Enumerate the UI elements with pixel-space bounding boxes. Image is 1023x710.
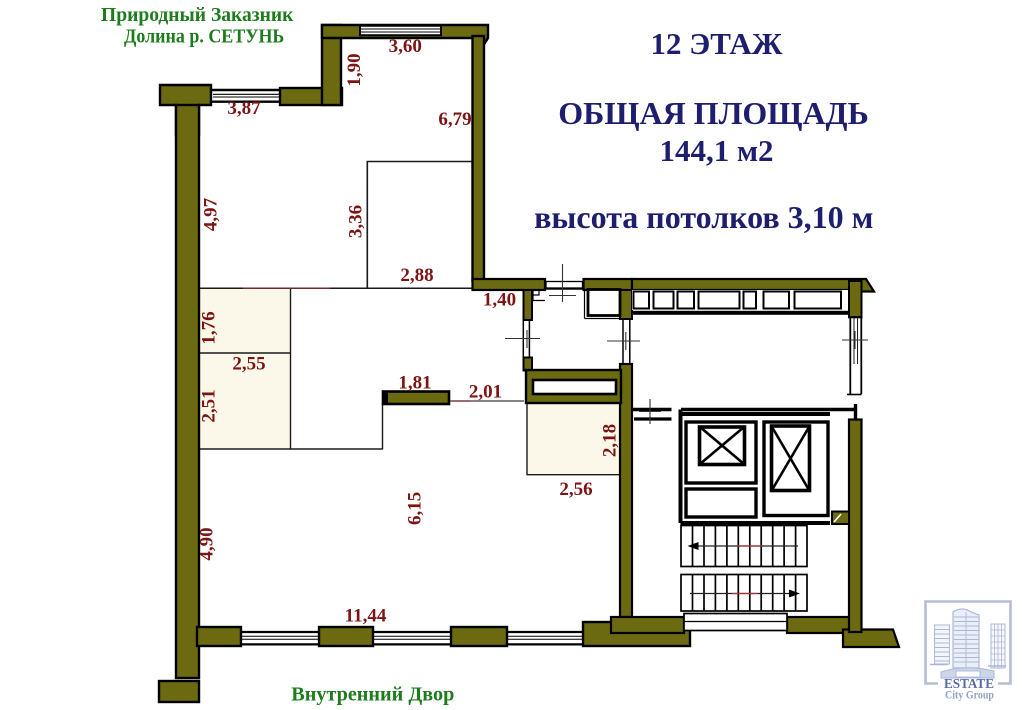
svg-text:высота потолков 3,10 м: высота потолков 3,10 м	[534, 199, 873, 235]
svg-text:1,76: 1,76	[198, 311, 219, 344]
svg-text:11,44: 11,44	[345, 606, 387, 627]
svg-text:2,88: 2,88	[400, 265, 433, 286]
svg-text:City Group: City Group	[945, 690, 994, 702]
svg-text:144,1 м2: 144,1 м2	[659, 133, 773, 168]
svg-text:2,51: 2,51	[198, 389, 219, 422]
svg-text:6,15: 6,15	[404, 492, 425, 525]
svg-text:1,81: 1,81	[398, 373, 431, 394]
svg-text:Природный Заказник: Природный Заказник	[101, 4, 294, 26]
svg-text:3,36: 3,36	[345, 205, 366, 238]
svg-text:3,60: 3,60	[389, 36, 422, 57]
svg-text:6,79: 6,79	[438, 109, 471, 130]
svg-text:ОБЩАЯ ПЛОЩАДЬ: ОБЩАЯ ПЛОЩАДЬ	[558, 95, 868, 131]
svg-text:1,90: 1,90	[344, 53, 365, 86]
svg-text:4,90: 4,90	[196, 527, 217, 560]
svg-text:Внутренний Двор: Внутренний Двор	[291, 684, 454, 706]
svg-text:2,01: 2,01	[469, 382, 502, 403]
svg-text:Долина р. СЕТУНЬ: Долина р. СЕТУНЬ	[124, 27, 284, 48]
svg-text:2,18: 2,18	[599, 424, 620, 457]
svg-text:12 ЭТАЖ: 12 ЭТАЖ	[651, 26, 783, 61]
svg-text:3,87: 3,87	[227, 98, 261, 119]
svg-text:1,40: 1,40	[483, 290, 516, 311]
svg-text:4,97: 4,97	[200, 197, 221, 231]
svg-text:2,56: 2,56	[559, 479, 592, 500]
svg-text:2,55: 2,55	[232, 354, 265, 375]
